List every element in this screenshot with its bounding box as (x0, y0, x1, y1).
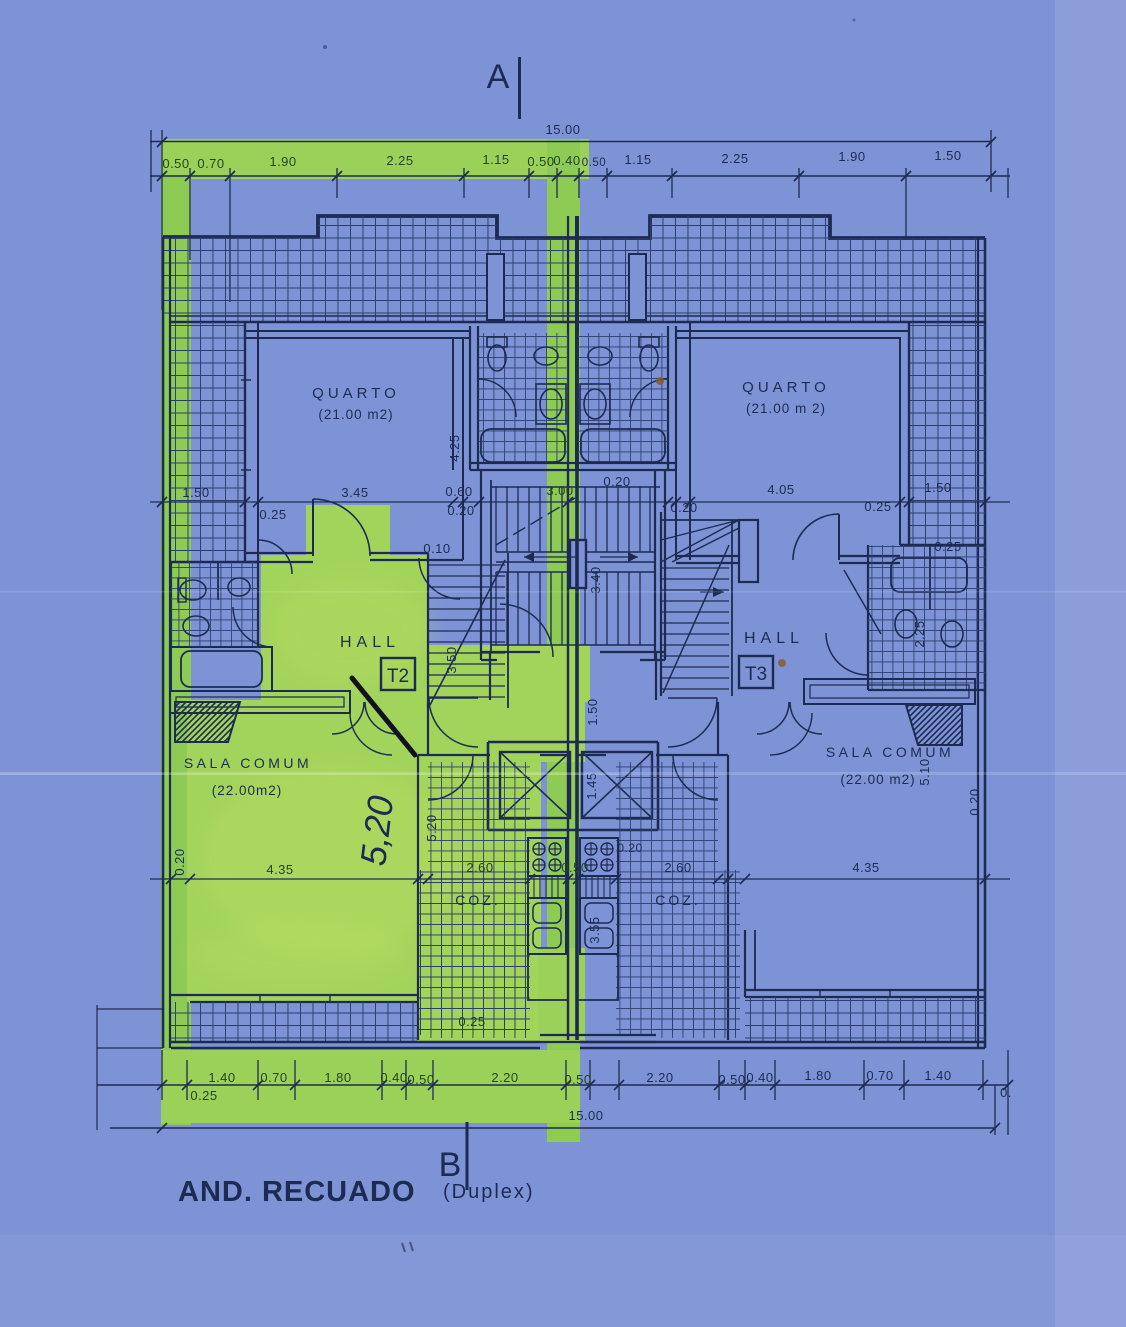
svg-text:0.70: 0.70 (260, 1070, 287, 1085)
svg-text:4.35: 4.35 (266, 862, 293, 877)
svg-text:15.00: 15.00 (545, 122, 580, 137)
svg-text:1.50: 1.50 (934, 148, 961, 163)
svg-text:0.70: 0.70 (197, 156, 224, 171)
svg-text:0.20: 0.20 (967, 788, 982, 815)
svg-text:1.80: 1.80 (804, 1068, 831, 1083)
svg-text:0.40: 0.40 (746, 1070, 773, 1085)
svg-text:3.40: 3.40 (588, 566, 603, 593)
svg-text:1.50: 1.50 (585, 698, 600, 725)
svg-text:(22.00m2): (22.00m2) (212, 783, 283, 798)
svg-text:2.20: 2.20 (491, 1070, 518, 1085)
svg-text:1.80: 1.80 (324, 1070, 351, 1085)
svg-text:0.40: 0.40 (553, 153, 580, 168)
svg-text:2.20: 2.20 (646, 1070, 673, 1085)
svg-text:0.20: 0.20 (172, 848, 187, 875)
svg-text:0.20: 0.20 (670, 500, 697, 515)
svg-text:(21.00 m2): (21.00 m2) (318, 407, 393, 422)
svg-text:T3: T3 (745, 664, 767, 685)
svg-text:1.40: 1.40 (924, 1068, 951, 1083)
svg-text:2.25: 2.25 (912, 620, 927, 647)
svg-text:A: A (487, 58, 510, 96)
svg-text:COZ.: COZ. (455, 892, 500, 908)
svg-text:0.50: 0.50 (564, 1072, 591, 1087)
svg-text:AND. RECUADO: AND. RECUADO (178, 1176, 416, 1208)
svg-text:0.20: 0.20 (603, 474, 630, 489)
svg-text:0.50: 0.50 (162, 156, 189, 171)
svg-text:2.25: 2.25 (386, 153, 413, 168)
svg-text:(21.00 m 2): (21.00 m 2) (746, 401, 826, 416)
svg-text:1.90: 1.90 (838, 149, 865, 164)
svg-text:5,20: 5,20 (352, 793, 401, 868)
svg-text:2.60: 2.60 (466, 860, 493, 875)
svg-text:T2: T2 (387, 666, 409, 687)
svg-text:1.40: 1.40 (208, 1070, 235, 1085)
svg-text:3.55: 3.55 (587, 916, 602, 943)
svg-text:HALL: HALL (744, 630, 804, 647)
svg-text:3.50: 3.50 (444, 646, 459, 673)
svg-text:(Duplex): (Duplex) (443, 1181, 535, 1203)
svg-text:0.50: 0.50 (527, 154, 554, 169)
svg-text:1.50: 1.50 (182, 485, 209, 500)
svg-text:B: B (439, 1146, 462, 1184)
svg-text:1.45: 1.45 (584, 772, 599, 799)
svg-text:HALL: HALL (340, 634, 400, 651)
svg-text:0.50: 0.50 (582, 157, 606, 169)
svg-text:0.50: 0.50 (407, 1072, 434, 1087)
svg-text:1.15: 1.15 (624, 152, 651, 167)
svg-text:QUARTO: QUARTO (742, 379, 830, 396)
svg-text:4.05: 4.05 (767, 482, 794, 497)
svg-text:SALA COMUM: SALA COMUM (184, 755, 312, 771)
svg-text:0.25: 0.25 (458, 1014, 485, 1029)
svg-text:0.25: 0.25 (190, 1088, 217, 1103)
svg-text:2.25: 2.25 (721, 151, 748, 166)
svg-text:5.20: 5.20 (424, 814, 439, 841)
svg-text:3.00: 3.00 (546, 483, 573, 498)
svg-text:0.20: 0.20 (617, 841, 642, 855)
svg-text:0.60: 0.60 (445, 484, 472, 499)
svg-text:0.50: 0.50 (718, 1072, 745, 1087)
svg-text:0.70: 0.70 (866, 1068, 893, 1083)
svg-text:COZ.: COZ. (655, 892, 700, 908)
svg-text:2.60: 2.60 (664, 860, 691, 875)
svg-text:1.90: 1.90 (269, 154, 296, 169)
svg-text:SALA COMUM: SALA COMUM (826, 744, 954, 760)
svg-text:3.45: 3.45 (341, 485, 368, 500)
svg-text:QUARTO: QUARTO (312, 385, 400, 402)
svg-text:1.15: 1.15 (482, 152, 509, 167)
svg-text:0.20: 0.20 (447, 503, 474, 518)
svg-text:0.: 0. (1000, 1085, 1012, 1100)
svg-text:0.50: 0.50 (561, 860, 588, 875)
svg-text:0.25: 0.25 (864, 499, 891, 514)
svg-text:15.00: 15.00 (568, 1108, 603, 1123)
svg-text:0.40: 0.40 (380, 1070, 407, 1085)
svg-text:0.10: 0.10 (423, 541, 450, 556)
svg-text:4.25: 4.25 (447, 434, 462, 461)
svg-text:4.35: 4.35 (852, 860, 879, 875)
svg-text:0.25: 0.25 (934, 539, 961, 554)
svg-text:0.25: 0.25 (259, 507, 286, 522)
svg-text:1.50: 1.50 (924, 480, 951, 495)
